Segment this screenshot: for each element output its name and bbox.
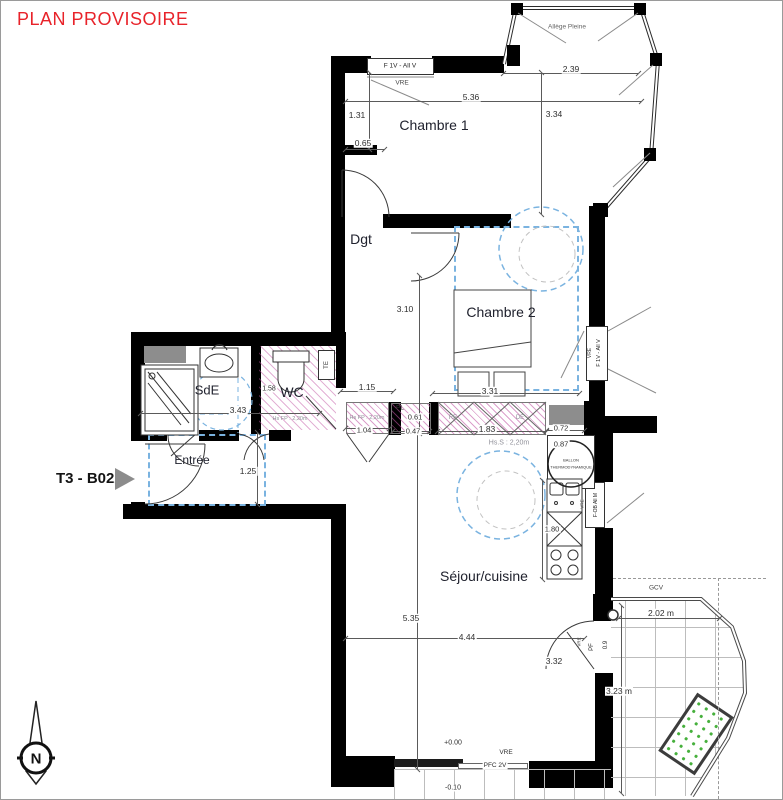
plan-linework <box>1 1 782 799</box>
dim-c2-depth: 3.10 <box>396 305 415 314</box>
balcony-door-label: PF <box>589 643 595 651</box>
dim-wc-width: 1.58 <box>261 386 277 393</box>
hs-fp-wc: Hs FP : 2,20m <box>272 416 307 422</box>
dim-duct-width: 0.72 <box>553 424 570 432</box>
dim-kitchen-len: 1.80 <box>544 525 561 533</box>
north-compass-icon <box>17 701 55 784</box>
re-label: RE <box>449 415 457 421</box>
sliding-door-label: PFC 2V <box>483 763 508 770</box>
room-sejour: Séjour/cuisine <box>440 568 528 584</box>
dim-line <box>346 101 641 102</box>
compass-letter: N <box>31 751 42 768</box>
guardrail <box>608 599 745 796</box>
dim-ballon-width: 0.87 <box>553 440 570 448</box>
dim-c1-depth: 3.34 <box>545 110 564 119</box>
stove <box>547 546 582 579</box>
dim-pl-width: 0.61 <box>407 413 424 421</box>
dim-line <box>621 606 622 793</box>
level-balcony: -0.10 <box>444 785 462 792</box>
bay-window <box>504 3 662 217</box>
dim-hall-strip: 1.04 <box>356 426 373 434</box>
dim-c1-niche-width: 0.65 <box>354 139 373 148</box>
dim-hall-width: 1.15 <box>358 383 377 392</box>
floor-plan-sheet: PLAN PROVISOIRE T3 - B022 <box>0 0 783 800</box>
dim-line <box>541 73 542 214</box>
dim-balcony-width: 2.02 m <box>647 609 675 618</box>
dim-bay-width: 2.39 <box>562 65 581 74</box>
dim-c1-niche-depth: 1.31 <box>348 111 367 120</box>
te-label: TE <box>324 361 330 369</box>
room-wc: WC <box>280 384 303 400</box>
c2-window-label: F 1V - All V <box>596 339 602 367</box>
hs-s: Hs.S : 2,20m <box>489 440 529 447</box>
balcony-door-width: 0.9 <box>603 641 609 649</box>
room-chambre2: Chambre 2 <box>466 304 535 320</box>
dim-sejour-width: 4.44 <box>458 633 477 642</box>
dim-line <box>346 149 384 150</box>
c1-window-label: F 1V - All V <box>384 63 417 70</box>
level-interior: +0.00 <box>443 740 463 747</box>
sliding-door-type: VRE <box>498 750 513 757</box>
dim-kitchen-strip: 1.83 <box>478 425 497 434</box>
dim-c2-width: 3.31 <box>481 387 500 396</box>
c1-window-type: VRE <box>395 80 408 87</box>
dim-line <box>417 433 418 769</box>
ballon-label-2: THERMODYNAMIQUE <box>550 465 592 470</box>
ballon-label-1: BALLON <box>563 458 579 463</box>
kitchen-window-label: F-OB All M <box>593 493 599 517</box>
dim-line <box>419 276 420 433</box>
c2-window-type: VRE <box>587 348 593 358</box>
hs-fp-hall: Hs FP : 2,20m <box>349 415 384 421</box>
dim-sejour-depth: 5.35 <box>402 614 421 623</box>
de-label: DE <box>516 415 524 421</box>
room-dgt: Dgt <box>350 231 372 247</box>
bay-sill-label: Allège Pleine <box>548 24 586 31</box>
dim-line <box>619 618 719 619</box>
dim-pl-depth: 0.47 <box>405 427 422 435</box>
room-entree: Entrée <box>174 453 209 467</box>
kitchen-sink <box>547 479 582 512</box>
dim-balcony-depth: 3.23 m <box>605 687 633 696</box>
dim-c1-width: 5.36 <box>462 93 481 102</box>
dim-sde-width: 3.43 <box>229 406 248 415</box>
sink <box>200 345 238 377</box>
dim-door-offset: 3.32 <box>545 657 564 666</box>
kitchen-window-type: VRE <box>580 499 585 508</box>
dim-entree-width: 1.25 <box>239 467 258 476</box>
room-sde: SdE <box>195 383 220 398</box>
dim-line <box>433 393 579 394</box>
pl-label: PL <box>396 405 404 412</box>
room-chambre1: Chambre 1 <box>399 117 468 133</box>
guardrail-label: GCV <box>649 585 663 592</box>
shower <box>141 365 198 435</box>
